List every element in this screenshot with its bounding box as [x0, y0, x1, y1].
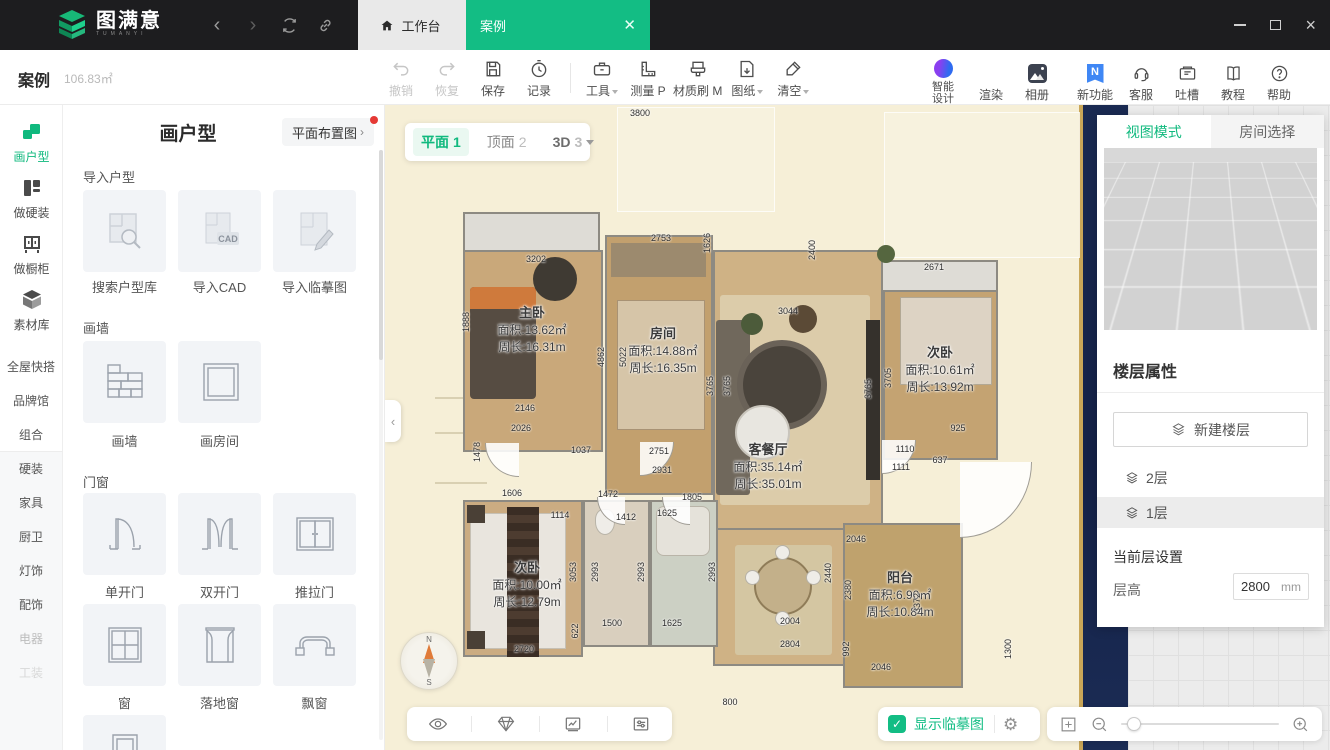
floor-properties-title: 楼层属性 — [1113, 358, 1177, 382]
dimension-label: 1300 — [1003, 639, 1013, 659]
tracing-settings-gear-icon[interactable]: ⚙ — [1003, 716, 1018, 733]
app-window: 图满意 TUMANYI ‹ › 工作台 — [0, 0, 1330, 750]
tab-plan-view[interactable]: 平面1 — [413, 128, 469, 156]
card-bay-window[interactable] — [273, 604, 356, 686]
floor-height-field: mm — [1233, 573, 1309, 600]
draw-floorplan-panel: 画户型 平面布置图› 导入户型 CAD 搜索户型库 导入CAD 导入临摹图 画墙… — [63, 105, 385, 750]
compass-needle-south — [423, 659, 435, 678]
material-brush-button[interactable]: 材质刷 M — [671, 55, 724, 103]
tab-ceiling-view[interactable]: 顶面2 — [479, 128, 535, 156]
link-icon[interactable] — [313, 13, 337, 37]
section-doors-label: 门窗 — [83, 472, 109, 491]
window-controls: × — [1234, 0, 1316, 50]
floor-height-unit: mm — [1281, 580, 1301, 594]
floor-height-input[interactable] — [1241, 579, 1279, 594]
sidebar-item-combos[interactable]: 组合 — [0, 418, 62, 452]
card-single-door[interactable] — [83, 493, 166, 575]
floor-height-label: 层高 — [1113, 580, 1141, 600]
card-label: 导入CAD — [178, 277, 261, 296]
main-toolbar: 案例 106.83㎡ 撤销 恢复 保存 记录 工具 — [0, 50, 1330, 105]
card-draw-room[interactable] — [178, 341, 261, 423]
panel-title: 画户型 — [63, 119, 313, 146]
document-area: 106.83㎡ — [64, 70, 113, 87]
svg-text:CAD: CAD — [218, 234, 238, 244]
chevron-down-icon — [586, 140, 594, 145]
zoom-toolbar — [1047, 707, 1322, 741]
album-icon — [1028, 64, 1047, 83]
tab-case[interactable]: 案例 ✕ — [466, 0, 650, 50]
drawings-button[interactable]: 图纸 — [724, 55, 770, 103]
view-mode-tabs: 平面1 顶面2 3D3 — [405, 123, 590, 161]
fit-view-icon[interactable] — [1059, 715, 1078, 734]
sidebar-item-hard-materials[interactable]: 硬装 — [0, 452, 62, 486]
3d-grid-plane — [1104, 148, 1317, 162]
sidebar-item-commercial[interactable]: 工装 — [0, 656, 62, 690]
app-logo: 图满意 TUMANYI — [56, 8, 162, 40]
current-floor-settings-label: 当前层设置 — [1113, 547, 1183, 567]
sidebar-item-kitchen-bath[interactable]: 厨卫 — [0, 520, 62, 554]
layers-icon — [1171, 422, 1186, 437]
furniture-dining-table[interactable] — [754, 557, 812, 615]
help-button[interactable]: 帮助 — [1256, 60, 1302, 107]
zoom-slider-knob[interactable] — [1127, 717, 1141, 731]
furniture-pillows — [470, 287, 536, 309]
album-button[interactable]: 相册 — [1014, 60, 1060, 107]
furniture-bed-right[interactable] — [900, 297, 992, 385]
3d-preview[interactable] — [1104, 148, 1317, 330]
tracing-tick — [435, 482, 487, 484]
canvas-display-toolbar — [407, 707, 672, 741]
sidebar-item-lighting[interactable]: 灯饰 — [0, 554, 62, 588]
properties-panel: 视图模式 房间选择 楼层属性 新建楼层 2层 1层 当前层设置 层高 — [1097, 115, 1324, 627]
card-floor-window[interactable] — [178, 604, 261, 686]
clear-button[interactable]: 清空 — [770, 55, 816, 103]
sidebar-item-quick-furnish[interactable]: 全屋快搭 — [0, 350, 62, 384]
tutorial-button[interactable]: 教程 — [1210, 60, 1256, 107]
title-bar: 图满意 TUMANYI ‹ › 工作台 — [0, 0, 1330, 50]
panel-collapse-handle[interactable]: ‹ — [385, 400, 401, 442]
card-label: 推拉门 — [273, 582, 356, 601]
furniture-chair — [806, 570, 821, 585]
furniture-chair — [775, 545, 790, 560]
save-button[interactable]: 保存 — [470, 55, 516, 103]
properties-panel-tabs: 视图模式 房间选择 — [1097, 115, 1324, 148]
furniture-plant — [741, 313, 763, 335]
furniture-bed-runner — [507, 507, 539, 657]
render-button[interactable]: 渲染 — [968, 60, 1014, 107]
furniture-plant — [877, 245, 895, 263]
tab-strip: 工作台 案例 ✕ — [358, 0, 650, 50]
compass-south-label: S — [426, 678, 431, 687]
notification-dot — [370, 116, 378, 124]
maximize-button[interactable] — [1270, 20, 1281, 30]
room-small-balcony[interactable] — [881, 260, 998, 292]
visibility-eye-icon[interactable] — [410, 714, 466, 734]
floor-item-1[interactable]: 1层 — [1097, 497, 1324, 528]
document-title: 案例 — [18, 67, 50, 91]
render-aperture-icon — [982, 64, 1001, 83]
new-floor-button[interactable]: 新建楼层 — [1113, 412, 1308, 447]
dropdown-caret — [803, 90, 809, 94]
compass: N S — [400, 632, 458, 690]
sidebar-mode-material-library[interactable]: 素材库 — [0, 288, 63, 333]
furniture-chair — [745, 570, 760, 585]
card-partial[interactable] — [83, 715, 166, 750]
close-button[interactable]: × — [1305, 20, 1316, 30]
tracing-toggle-bar: ✓ 显示临摹图 ⚙ — [878, 707, 1040, 741]
hard-decor-icon — [20, 176, 44, 200]
new-features-button[interactable]: N 新功能 — [1072, 60, 1118, 107]
door-arc — [485, 443, 519, 477]
furniture-wardrobe[interactable] — [611, 243, 706, 277]
tab-workspace[interactable]: 工作台 — [358, 0, 463, 50]
tracing-ghost-outline — [617, 107, 775, 212]
tab-close-icon[interactable]: ✕ — [623, 16, 636, 34]
tab-view-mode[interactable]: 视图模式 — [1097, 115, 1211, 148]
room-balcony[interactable] — [843, 523, 963, 688]
door-arc-entry — [960, 462, 1032, 538]
sidebar-item-appliances[interactable]: 电器 — [0, 622, 62, 656]
3d-room-block — [1254, 270, 1284, 292]
card-double-door[interactable] — [178, 493, 261, 575]
tab-room-select[interactable]: 房间选择 — [1211, 115, 1325, 148]
new-features-icon: N — [1087, 64, 1104, 83]
tab-workspace-label: 工作台 — [401, 16, 440, 35]
card-label: 搜索户型库 — [83, 277, 166, 296]
left-sidebar: 画户型 做硬装 做橱柜 素材库 全屋快搭 品牌馆 组合 硬装 家具 厨卫 灯饰 … — [0, 105, 63, 750]
logo-icon — [56, 8, 88, 40]
3d-room-block — [1174, 280, 1198, 304]
sidebar-item-brand-hall[interactable]: 品牌馆 — [0, 384, 62, 418]
measure-button[interactable]: 测量 P — [625, 55, 671, 103]
ai-design-icon — [934, 59, 953, 78]
chevron-right-icon: › — [360, 125, 364, 139]
undo-button[interactable]: 撤销 — [378, 55, 424, 103]
tools-button[interactable]: 工具 — [579, 55, 625, 103]
layers-icon — [1125, 506, 1139, 520]
tracing-ghost-outline — [884, 112, 1080, 258]
furniture-nightstand — [467, 505, 485, 523]
dropdown-caret — [612, 90, 618, 94]
card-label: 单开门 — [83, 582, 166, 601]
ai-design-button[interactable]: 智能设计 — [918, 55, 968, 109]
furniture-plant — [789, 305, 817, 333]
furniture-tv-cabinet[interactable] — [866, 320, 880, 480]
floor-item-2[interactable]: 2层 — [1097, 462, 1324, 493]
furniture-round-rug — [533, 257, 577, 301]
home-icon — [380, 19, 394, 32]
door-arc — [882, 440, 916, 474]
card-import-tracing[interactable] — [273, 190, 356, 272]
refresh-icon[interactable] — [277, 13, 301, 37]
quality-diamond-icon[interactable] — [478, 714, 534, 734]
dimension-label: 1606 — [502, 488, 522, 498]
view-selector-button[interactable]: 平面布置图› — [282, 118, 374, 146]
sidebar-mode-draw-floorplan[interactable]: 画户型 — [0, 120, 63, 165]
card-label: 画墙 — [83, 431, 166, 450]
card-label: 窗 — [83, 693, 166, 712]
compass-north-label: N — [426, 635, 432, 644]
dimension-label: 800 — [722, 697, 737, 707]
card-label: 双开门 — [178, 582, 261, 601]
sidebar-mode-hard-decor[interactable]: 做硬装 — [0, 176, 63, 221]
section-wall-label: 画墙 — [83, 318, 109, 337]
card-window[interactable] — [83, 604, 166, 686]
zoom-out-icon[interactable] — [1090, 715, 1109, 734]
box-icon — [20, 288, 44, 312]
feedback-button[interactable]: 吐槽 — [1164, 60, 1210, 107]
display-settings-icon[interactable] — [613, 714, 669, 734]
tracing-toggle-label[interactable]: 显示临摹图 — [914, 714, 984, 734]
zoom-slider[interactable] — [1121, 723, 1279, 725]
card-label: 画房间 — [178, 431, 261, 450]
card-import-cad[interactable]: CAD — [178, 190, 261, 272]
room-closet-strip[interactable] — [463, 212, 600, 252]
tracing-checkbox[interactable]: ✓ — [888, 715, 906, 733]
card-search-floorplan-library[interactable] — [83, 190, 166, 272]
furniture-nightstand — [467, 631, 485, 649]
tab-case-label: 案例 — [480, 16, 506, 35]
section-import-label: 导入户型 — [83, 167, 135, 186]
zoom-in-icon[interactable] — [1291, 715, 1310, 734]
dropdown-caret — [757, 90, 763, 94]
card-label: 落地窗 — [178, 693, 261, 712]
history-button[interactable]: 记录 — [516, 55, 562, 103]
redo-button[interactable]: 恢复 — [424, 55, 470, 103]
card-draw-wall[interactable] — [83, 341, 166, 423]
furniture-armchair[interactable] — [735, 405, 790, 460]
3d-room-block — [1200, 276, 1234, 310]
sidebar-item-furniture[interactable]: 家具 — [0, 486, 62, 520]
sidebar-mode-cabinets[interactable]: 做橱柜 — [0, 232, 63, 277]
layers-icon — [1125, 471, 1139, 485]
logo-text: 图满意 — [96, 11, 162, 31]
minimize-button[interactable] — [1234, 24, 1246, 26]
nav-back-icon[interactable]: ‹ — [205, 13, 229, 37]
nav-forward-icon[interactable]: › — [241, 13, 265, 37]
floorplan-icon — [20, 120, 44, 144]
sidebar-item-accessories[interactable]: 配饰 — [0, 588, 62, 622]
tab-3d-view[interactable]: 3D3 — [545, 130, 603, 154]
card-label: 导入临摹图 — [273, 277, 356, 296]
card-label: 飘窗 — [273, 693, 356, 712]
card-sliding-door[interactable] — [273, 493, 356, 575]
support-button[interactable]: 客服 — [1118, 60, 1164, 107]
furniture-chair — [775, 611, 790, 626]
panel-scrollbar-thumb[interactable] — [379, 150, 383, 360]
furniture-bed-middle[interactable] — [617, 300, 705, 430]
cabinet-icon — [20, 232, 44, 256]
chart-icon[interactable] — [545, 714, 601, 734]
